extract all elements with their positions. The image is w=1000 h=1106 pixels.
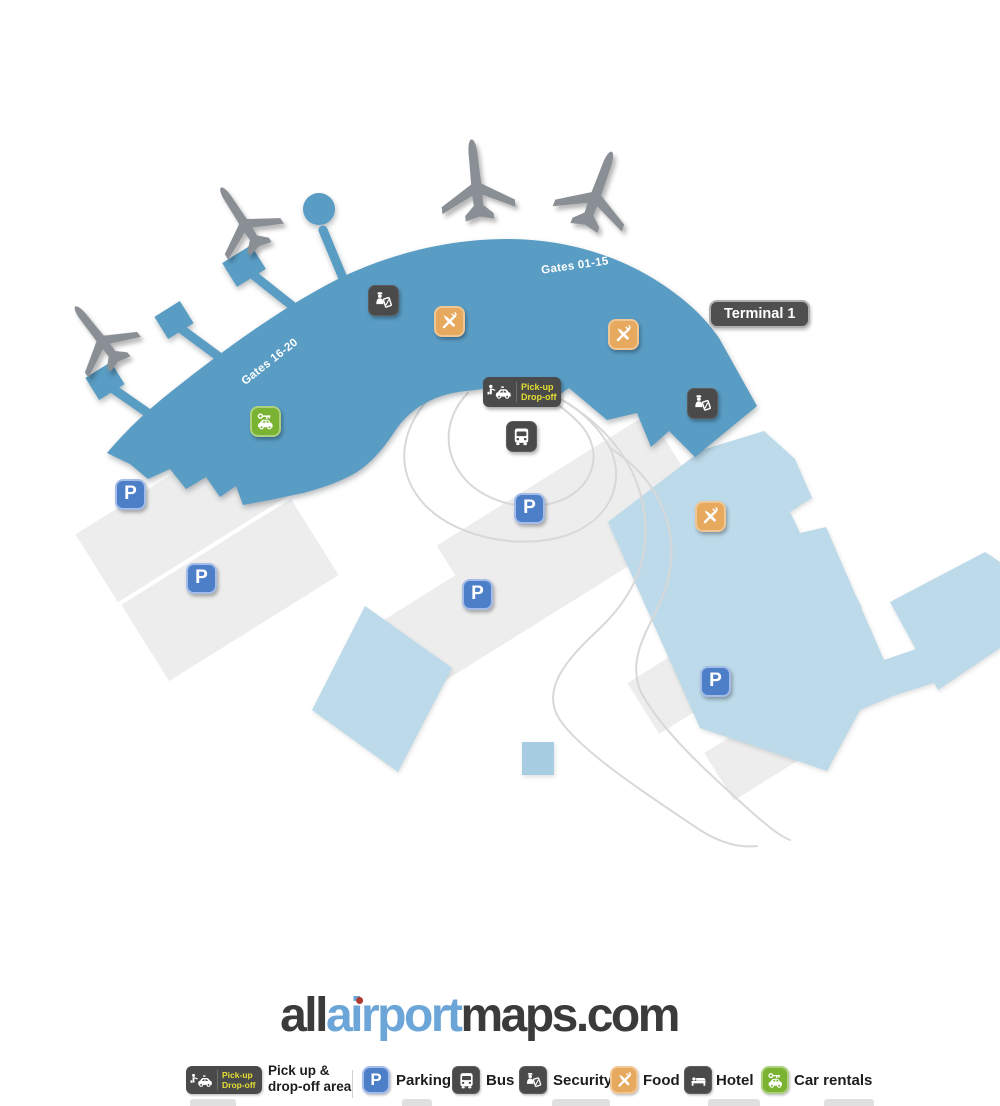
key-car-glyph <box>765 1070 786 1091</box>
logo-part-airport: airport <box>326 992 461 1040</box>
parking-letter: P <box>195 568 208 587</box>
secondary-building-square <box>522 742 554 775</box>
parking-letter: P <box>370 1071 381 1088</box>
legend-hotel-icon <box>684 1066 712 1094</box>
fork-knife-glyph <box>612 323 635 346</box>
legend-security-icon <box>519 1066 547 1094</box>
legend-parking-icon: P <box>362 1066 390 1094</box>
fork-knife-glyph <box>699 505 722 528</box>
bus-glyph <box>456 1070 477 1091</box>
fork-knife-glyph <box>614 1070 635 1091</box>
badge-divider <box>516 382 517 402</box>
food-icon <box>434 306 465 337</box>
pickup-dropoff-badge: Pick-up Drop-off <box>483 377 561 407</box>
food-icon <box>608 319 639 350</box>
bed-glyph <box>688 1070 709 1091</box>
security-icon <box>368 285 399 316</box>
security-glyph <box>523 1070 544 1091</box>
parking-icon: P <box>186 563 217 594</box>
security-glyph <box>691 392 714 415</box>
legend-bus-icon <box>452 1066 480 1094</box>
legend-pickup-badge-line1: Pick-up <box>222 1070 256 1080</box>
legend-food-label: Food <box>643 1072 680 1089</box>
airplane-icon <box>549 139 646 240</box>
pickup-badge-line1: Pick-up <box>521 382 557 393</box>
parking-icon: P <box>462 579 493 610</box>
parking-icon: P <box>700 666 731 697</box>
legend-bus-label: Bus <box>486 1072 514 1089</box>
badge-divider <box>217 1070 218 1090</box>
logo-i-dot <box>356 997 363 1004</box>
airplane-icon <box>49 286 146 384</box>
airport-map-page: { "map": { "terminal_label": "Terminal 1… <box>0 0 1000 1103</box>
site-logo[interactable]: allairportmaps.com <box>280 992 678 1040</box>
parking-icon: P <box>514 493 545 524</box>
legend-food-icon <box>610 1066 638 1094</box>
logo-part-all: all <box>280 989 326 1042</box>
security-icon <box>687 388 718 419</box>
legend-hotel-label: Hotel <box>716 1072 754 1089</box>
legend-pickup-label: Pick up & drop-off area <box>268 1063 351 1095</box>
terminal-1-label: Terminal 1 <box>709 300 810 328</box>
legend-parking-label: Parking <box>396 1072 451 1089</box>
legend-car-rentals-label: Car rentals <box>794 1072 872 1089</box>
legend-pickup-badge-line2: Drop-off <box>222 1080 256 1090</box>
parking-letter: P <box>124 484 137 503</box>
parking-letter: P <box>471 584 484 603</box>
security-glyph <box>372 289 395 312</box>
airport-map-canvas <box>0 0 1000 960</box>
bus-icon <box>506 421 537 452</box>
key-car-glyph <box>254 410 277 433</box>
legend-pickup-dropoff-badge: Pick-up Drop-off <box>186 1066 262 1094</box>
bus-glyph <box>510 425 533 448</box>
pier-rotunda <box>303 193 335 225</box>
car-rentals-icon <box>250 406 281 437</box>
legend-car-rentals-icon <box>761 1066 789 1094</box>
parking-letter: P <box>523 498 536 517</box>
pickup-dropoff-icon <box>190 1071 214 1090</box>
food-icon <box>695 501 726 532</box>
fork-knife-glyph <box>438 310 461 333</box>
legend-security-label: Security <box>553 1072 612 1089</box>
logo-part-maps: maps.com <box>460 989 677 1042</box>
parking-icon: P <box>115 479 146 510</box>
parking-letter: P <box>709 671 722 690</box>
pickup-badge-line2: Drop-off <box>521 392 557 403</box>
pickup-dropoff-icon <box>487 382 513 402</box>
legend-divider <box>352 1070 353 1098</box>
airplane-icon <box>435 136 517 224</box>
